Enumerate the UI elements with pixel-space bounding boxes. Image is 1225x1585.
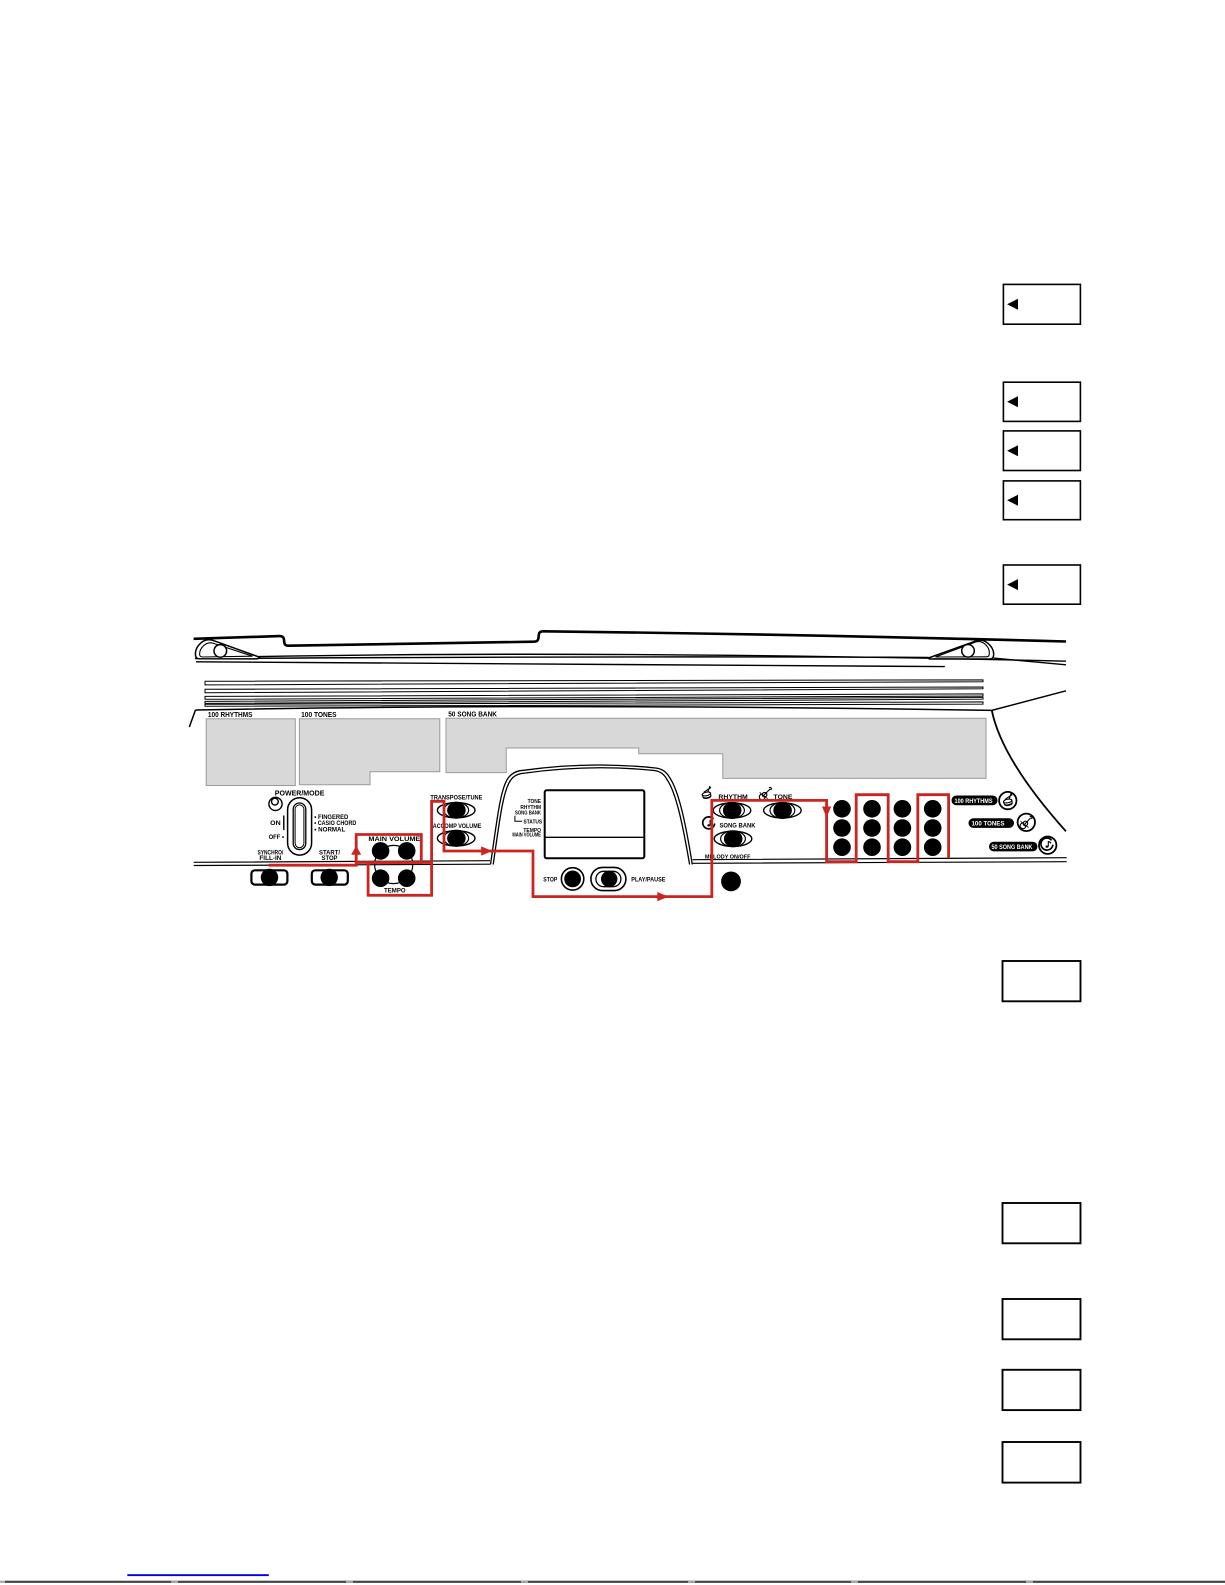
svg-text:STATUS: STATUS bbox=[524, 820, 543, 826]
svg-text:SONG BANK: SONG BANK bbox=[720, 822, 756, 829]
svg-text:POWER/MODE: POWER/MODE bbox=[275, 788, 325, 797]
svg-text:STOP: STOP bbox=[543, 877, 557, 884]
svg-text:50 SONG BANK: 50 SONG BANK bbox=[992, 845, 1034, 851]
svg-text:• FINGERED: • FINGERED bbox=[314, 815, 349, 821]
svg-text:FILL-IN: FILL-IN bbox=[259, 855, 281, 862]
svg-text:ON: ON bbox=[270, 821, 281, 827]
svg-text:PLAY/PAUSE: PLAY/PAUSE bbox=[631, 877, 665, 884]
svg-text:TEMPO: TEMPO bbox=[384, 887, 406, 894]
svg-text:• NORMAL: • NORMAL bbox=[314, 828, 345, 834]
svg-text:STOP: STOP bbox=[322, 855, 338, 862]
svg-text:100 RHYTHMS: 100 RHYTHMS bbox=[955, 799, 993, 805]
svg-text:100 TONES: 100 TONES bbox=[301, 712, 337, 719]
svg-text:100 TONES: 100 TONES bbox=[972, 822, 1005, 828]
svg-text:• CASIO CHORD: • CASIO CHORD bbox=[314, 821, 357, 827]
svg-text:50 SONG BANK: 50 SONG BANK bbox=[448, 712, 497, 719]
svg-text:SONG BANK: SONG BANK bbox=[515, 811, 541, 817]
svg-text:MAIN VOLUME: MAIN VOLUME bbox=[512, 833, 541, 839]
svg-text:100 RHYTHMS: 100 RHYTHMS bbox=[208, 712, 253, 719]
svg-text:ACCOMP VOLUME: ACCOMP VOLUME bbox=[433, 823, 482, 830]
svg-text:MAIN VOLUME: MAIN VOLUME bbox=[368, 836, 420, 843]
svg-text:OFF •: OFF • bbox=[269, 835, 285, 841]
